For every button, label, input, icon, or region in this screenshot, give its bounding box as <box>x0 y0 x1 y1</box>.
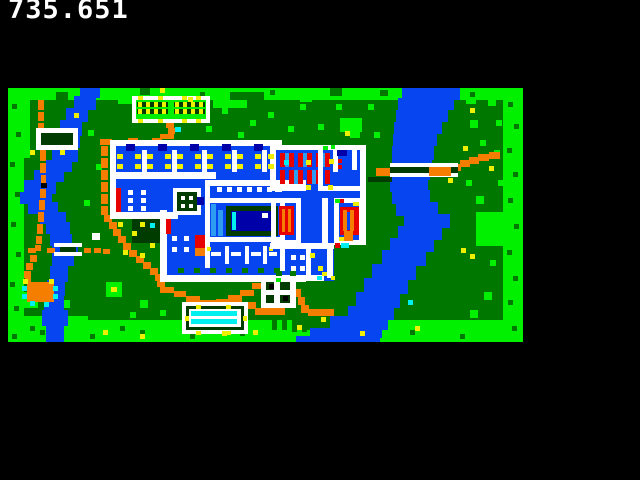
score-counter: 735.651 <box>8 0 129 23</box>
overworld-map-canvas[interactable] <box>0 0 640 480</box>
game-screen: 735.651 <box>0 0 640 480</box>
